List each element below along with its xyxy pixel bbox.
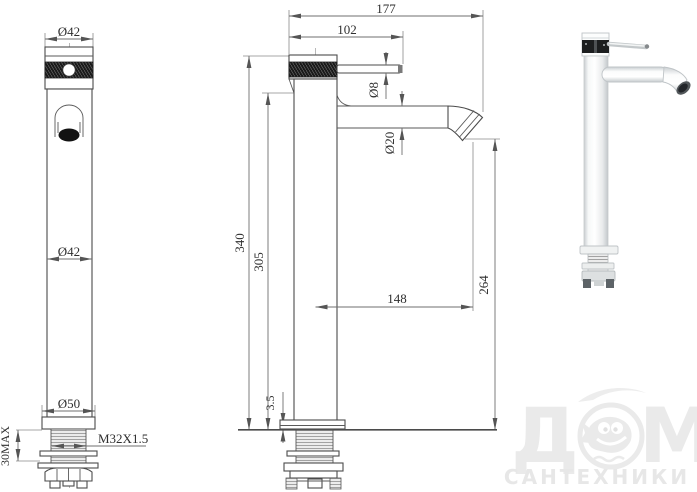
dim-label-flange-thickness: 3.5 (263, 396, 277, 411)
dim-label-spout-reach: 148 (387, 291, 407, 306)
mounting-nut-side (284, 463, 343, 471)
drawing-svg: Д М САНТЕХНИКИ Ø42 (0, 0, 697, 492)
watermark-subtitle: САНТЕХНИКИ (504, 465, 690, 489)
handle-pivot-front (63, 64, 76, 77)
dim-label-overall-depth: 177 (376, 1, 396, 16)
dim-label-outlet-height: 264 (476, 275, 491, 295)
dim-label-overall-height: 340 (232, 233, 247, 253)
watermark-fish-logo (580, 405, 642, 467)
dim-label-mounting-thickness: 30MAX (0, 426, 12, 466)
front-view-drawing: Ø42 Ø42 Ø50 (0, 24, 148, 488)
faucet-body-side (294, 79, 337, 421)
dim-label-body-diameter: Ø42 (58, 244, 80, 259)
photo-body (584, 56, 608, 248)
dim-label-body-height: 305 (251, 252, 266, 272)
spout-elbow-side (448, 106, 483, 141)
faucet-technical-drawing-page: Д М САНТЕХНИКИ Ø42 (0, 0, 697, 492)
dim-label-base-diameter: Ø50 (58, 396, 80, 411)
product-photo (580, 33, 693, 288)
dim-label-spout-diameter: Ø20 (382, 132, 397, 154)
handle-lever-side (337, 65, 401, 73)
base-flange-side (280, 420, 345, 429)
side-view-drawing: 177 102 340 305 Ø8 Ø20 (232, 1, 500, 489)
threaded-shank-front (51, 429, 86, 451)
threaded-shank-side (296, 430, 333, 451)
base-flange-front (42, 417, 95, 429)
dim-label-handle-diameter: Ø8 (366, 82, 381, 98)
watermark-dom-santehniki: Д М САНТЕХНИКИ (504, 388, 697, 489)
dim-label-thread-spec: M32X1.5 (98, 431, 148, 446)
spout-outlet-front (59, 129, 80, 142)
photo-spout (602, 67, 668, 82)
watermark-swoosh (578, 388, 646, 402)
photo-base-flange (580, 246, 618, 254)
dim-label-head-diameter: Ø42 (58, 24, 80, 39)
dim-label-body-to-handle: 102 (337, 22, 357, 37)
knurl-band-side (289, 62, 337, 77)
